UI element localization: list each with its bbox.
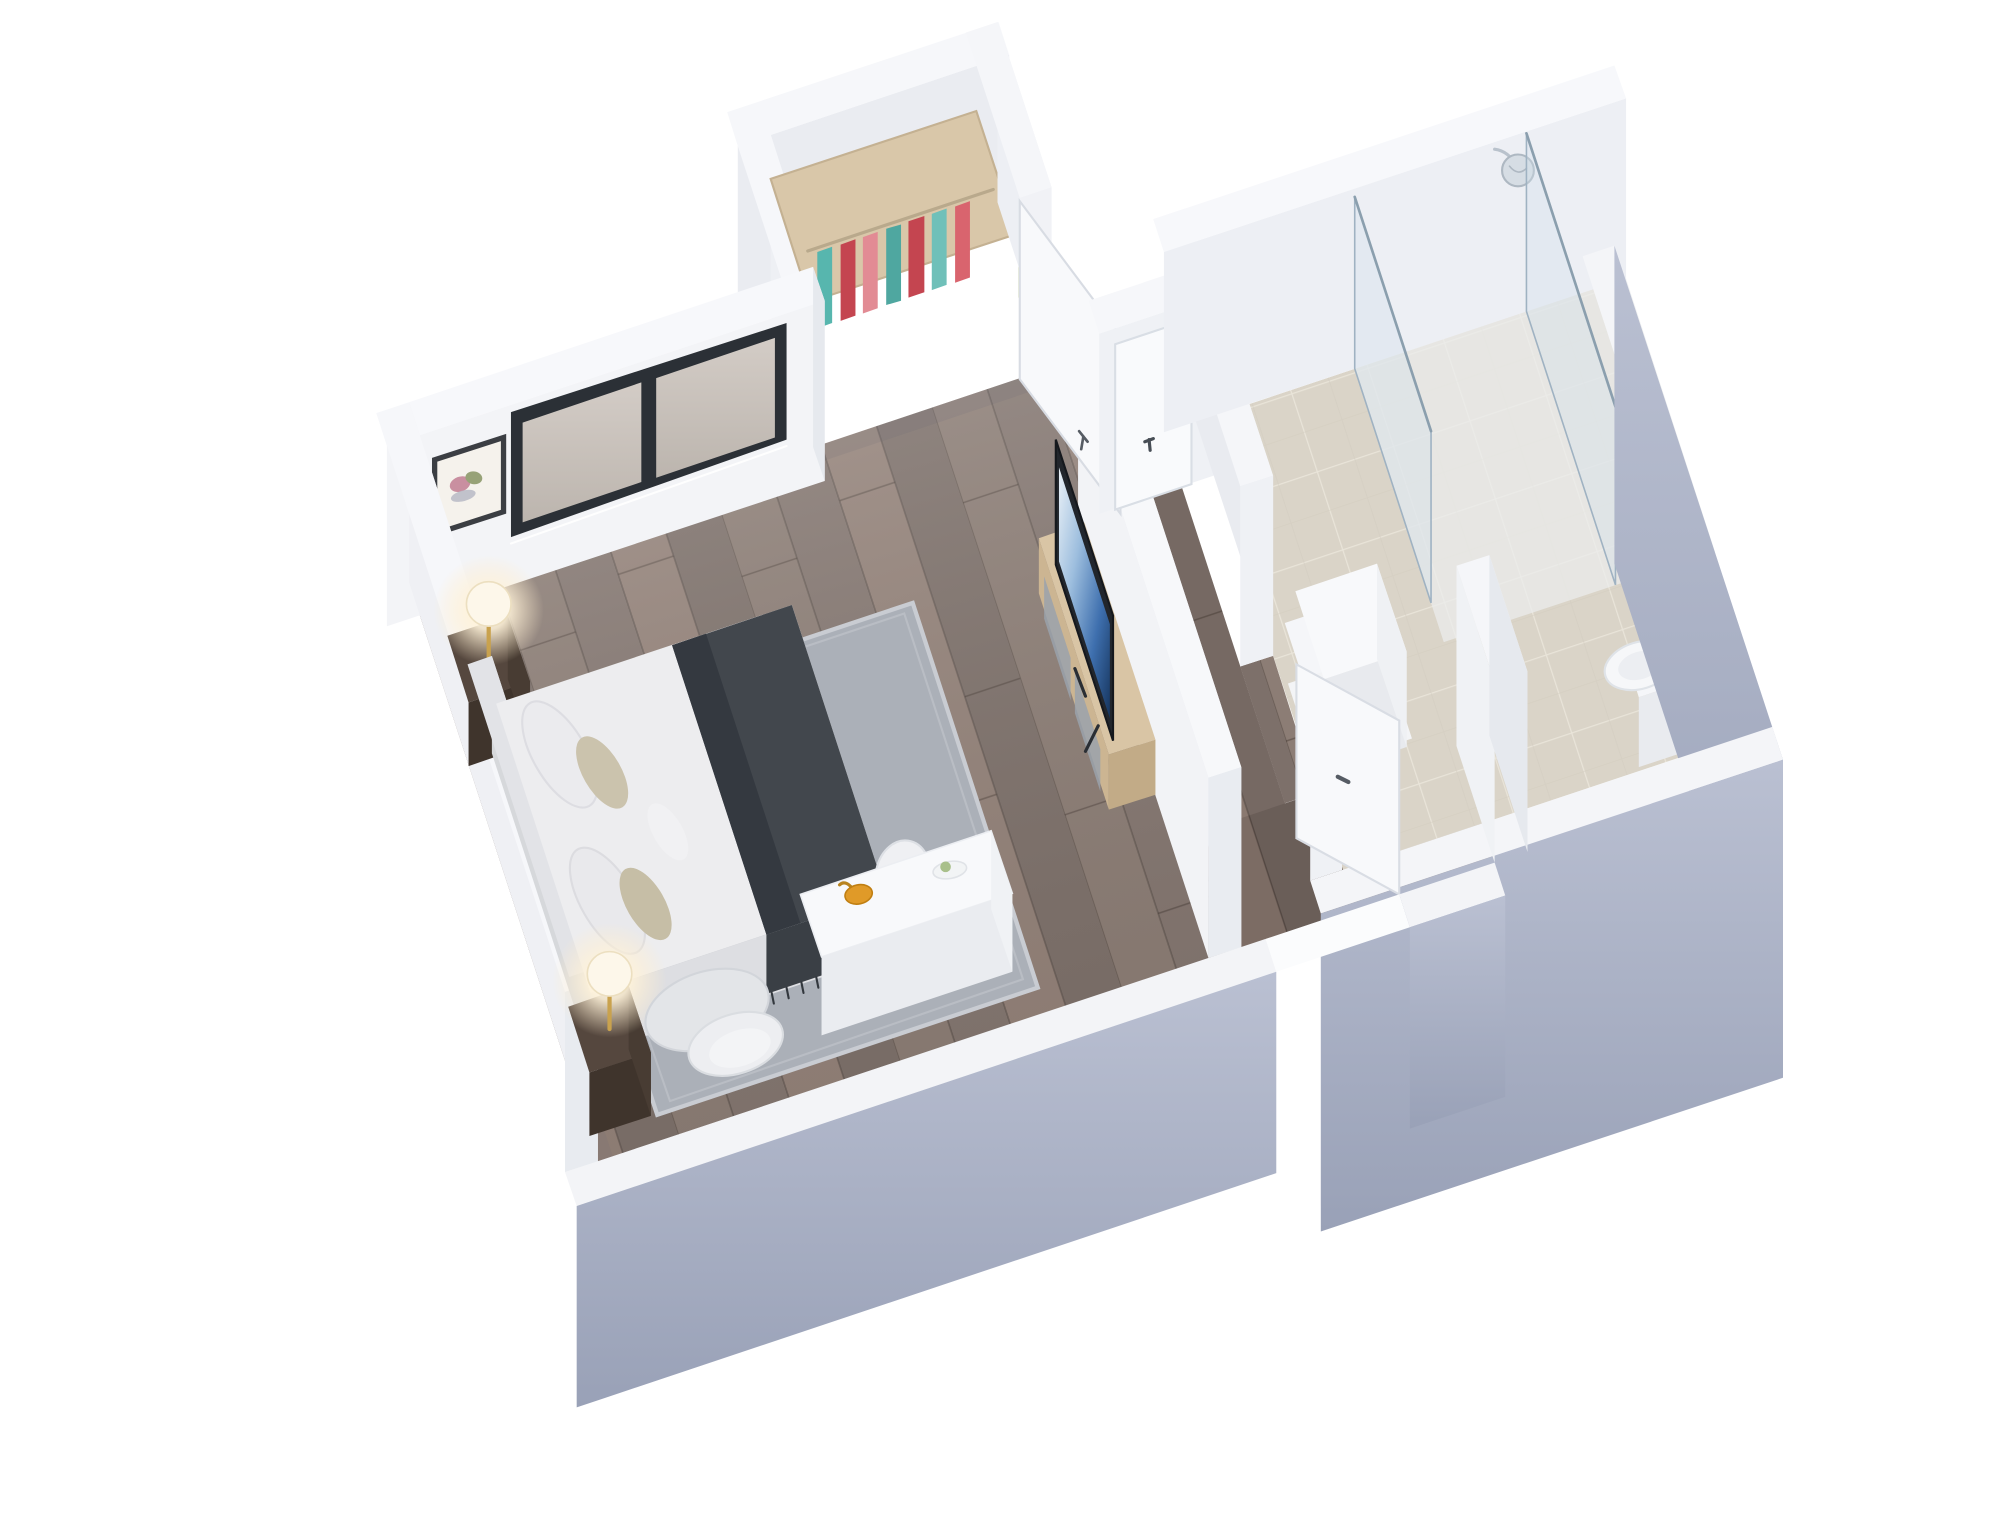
divider-wall-endcap xyxy=(1208,767,1241,958)
floor-plan-canvas xyxy=(40,16,2000,1516)
entry-wall-exterior xyxy=(1410,895,1505,1128)
lamp-b-shade xyxy=(587,952,632,997)
clothes-item-4 xyxy=(886,224,901,305)
window-wall-endcap xyxy=(813,267,825,481)
scene-root xyxy=(376,22,1783,1407)
bath-left-wall-a-end xyxy=(1240,476,1273,667)
floor-plan-3d-render xyxy=(40,16,2000,1516)
clothes-item-3 xyxy=(863,232,878,314)
clothes-item-2 xyxy=(841,239,856,321)
desk-plate-sprig xyxy=(940,862,951,873)
lamp-a-shade xyxy=(466,582,511,627)
clothes-item-6 xyxy=(932,209,947,291)
clothes-item-7 xyxy=(955,201,970,283)
clothes-item-5 xyxy=(908,216,924,298)
